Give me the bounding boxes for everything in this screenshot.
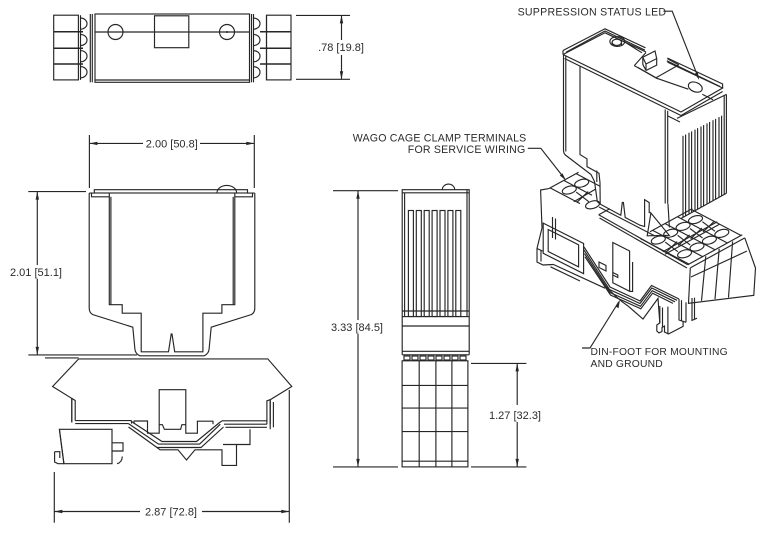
svg-text:3.33 [84.5]: 3.33 [84.5] — [331, 322, 383, 334]
svg-text:FOR SERVICE WIRING: FOR SERVICE WIRING — [408, 144, 526, 156]
svg-text:SUPPRESSION STATUS LED: SUPPRESSION STATUS LED — [518, 6, 667, 18]
svg-text:2.00 [50.8]: 2.00 [50.8] — [146, 139, 198, 151]
svg-text:AND GROUND: AND GROUND — [591, 359, 663, 370]
svg-text:2.01 [51.1]: 2.01 [51.1] — [10, 267, 62, 279]
svg-text:WAGO CAGE CLAMP TERMINALS: WAGO CAGE CLAMP TERMINALS — [353, 132, 527, 144]
svg-text:2.87 [72.8]: 2.87 [72.8] — [145, 507, 197, 519]
svg-text:DIN-FOOT FOR MOUNTING: DIN-FOOT FOR MOUNTING — [591, 347, 728, 358]
svg-text:.78 [19.8]: .78 [19.8] — [318, 42, 364, 54]
svg-text:1.27 [32.3]: 1.27 [32.3] — [489, 410, 541, 422]
